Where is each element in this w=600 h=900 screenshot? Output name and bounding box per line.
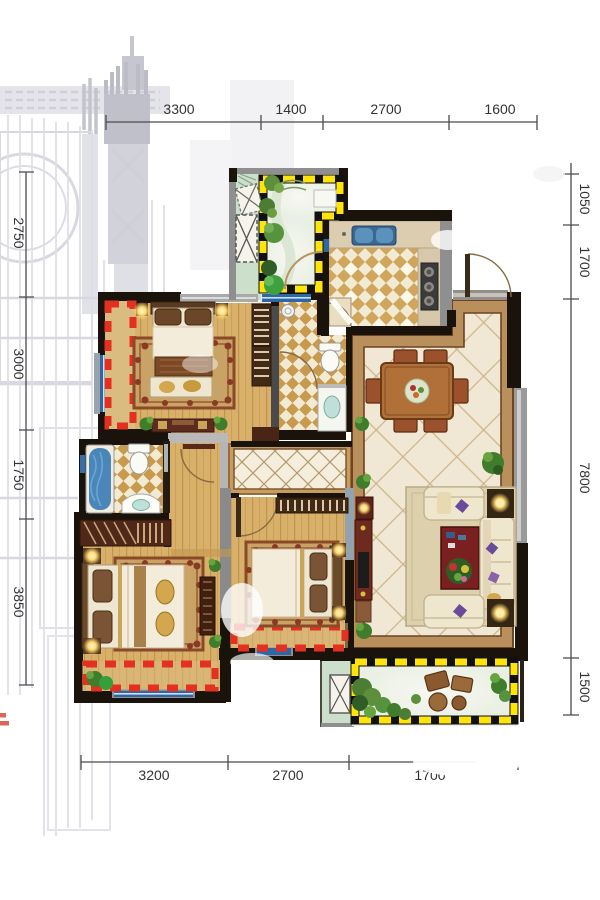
svg-text:1400: 1400 [275, 101, 306, 117]
svg-text:2750: 2750 [11, 217, 27, 248]
svg-text:3300: 3300 [163, 101, 194, 117]
svg-text:2700: 2700 [272, 767, 303, 783]
svg-text:7800: 7800 [577, 462, 593, 493]
svg-text:3200: 3200 [138, 767, 169, 783]
svg-text:1600: 1600 [484, 101, 515, 117]
svg-text:2700: 2700 [370, 101, 401, 117]
svg-text:1700: 1700 [577, 246, 593, 277]
svg-text:3850: 3850 [11, 586, 27, 617]
svg-text:1750: 1750 [11, 459, 27, 490]
svg-text:1500: 1500 [577, 671, 593, 702]
svg-text:3000: 3000 [11, 348, 27, 379]
svg-text:1050: 1050 [577, 183, 593, 214]
